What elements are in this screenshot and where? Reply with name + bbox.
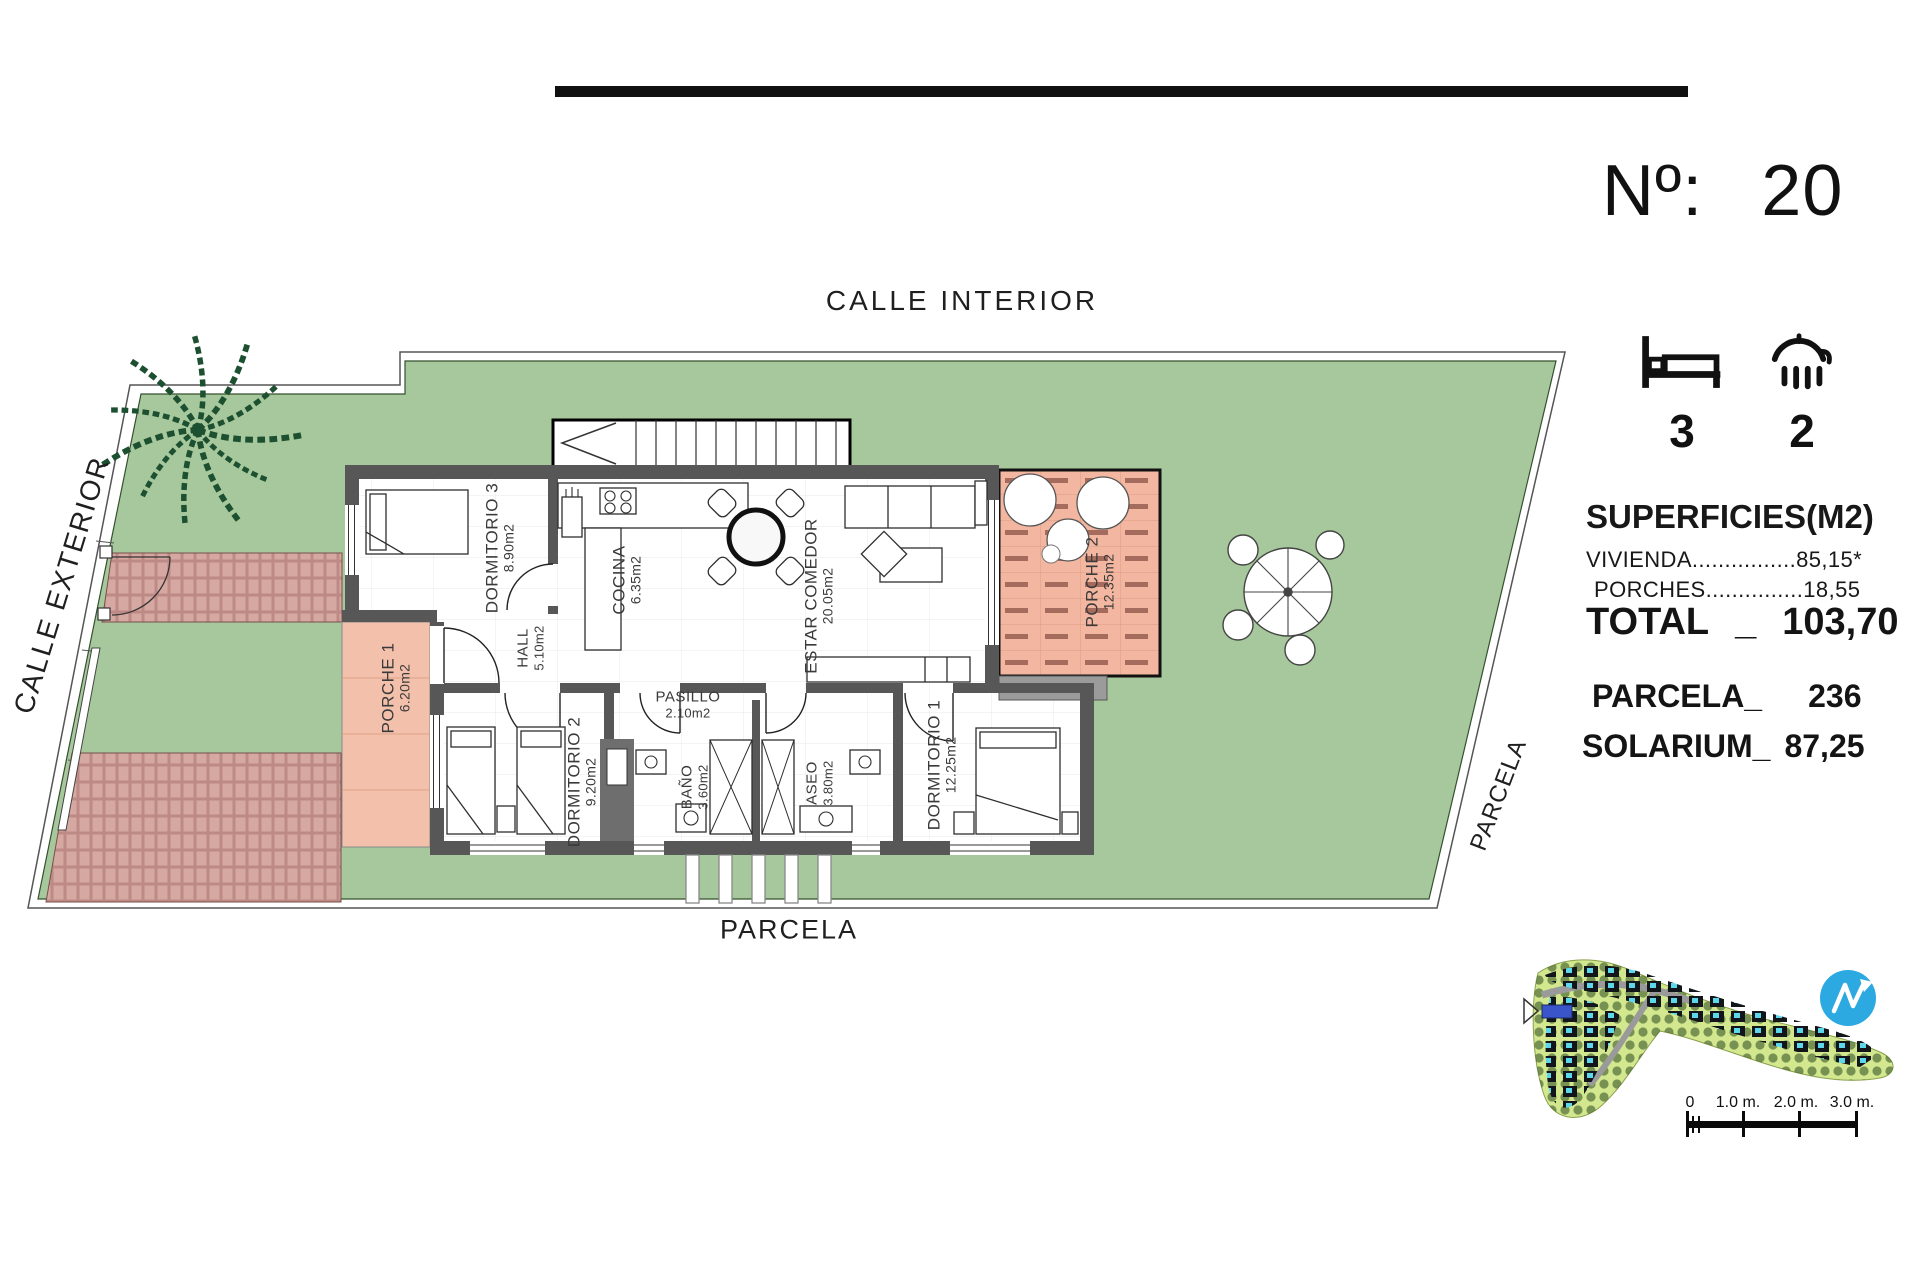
room-label-cocina: COCINA 6.35m2: [610, 545, 645, 614]
scale-tick-2: 2.0 m.: [1774, 1094, 1818, 1112]
floor-plan-page: CALLE INTERIOR CALLE EXTERIOR PARCELA PA…: [0, 0, 1920, 1280]
surface-value: 18,55: [1803, 577, 1860, 602]
scale-bar-line: [1686, 1121, 1858, 1128]
room-label-hall: HALL 5.10m2: [515, 625, 546, 670]
room-label-porche-1: PORCHE 1 6.20m2: [379, 643, 414, 734]
scale-tick-0: 0: [1686, 1094, 1695, 1112]
room-name: HALL: [515, 628, 532, 668]
porche-2-area: [999, 470, 1160, 700]
solarium-row: SOLARIUM_ 87,25: [1582, 728, 1865, 765]
room-area: 20.05m2: [821, 568, 837, 625]
surface-label: VIVIENDA: [1586, 547, 1692, 572]
total-separator: _: [1735, 601, 1756, 644]
dot-leader: ...............: [1706, 577, 1804, 602]
unit-number: Nº: 20: [1602, 150, 1843, 232]
room-name: ASEO: [804, 761, 821, 805]
room-label-pasillo: PASILLO 2.10m2: [656, 689, 721, 720]
room-area: 6.35m2: [629, 556, 645, 605]
surface-value: 85,15*: [1796, 547, 1862, 572]
wardrobe: [607, 749, 627, 785]
scale-bar: 0 1.0 m. 2.0 m. 3.0 m.: [1686, 1094, 1876, 1142]
room-label-dormitorio-3: DORMITORIO 3 8.90m2: [483, 483, 518, 613]
room-label-dormitorio-1: DORMITORIO 1 12.25m2: [925, 700, 960, 830]
surface-row-vivienda: VIVIENDA................85,15*: [1586, 547, 1862, 573]
plot-20-marker: [1542, 1005, 1572, 1018]
scale-tick-3: 3.0 m.: [1830, 1094, 1874, 1112]
staircase: [553, 420, 850, 467]
scale-bar-tick: [1855, 1111, 1858, 1137]
unit-number-label: Nº:: [1602, 150, 1703, 232]
room-name: ESTAR COMEDOR: [802, 518, 821, 673]
street-label-parcela-bottom: PARCELA: [720, 915, 858, 946]
parcela-row: PARCELA_ 236: [1592, 678, 1861, 715]
bathroom-count: 2: [1789, 404, 1815, 458]
room-label-porche-2: PORCHE 2 12.35m2: [1083, 537, 1118, 628]
solarium-value: 87,25: [1784, 728, 1864, 765]
room-area: 3.60m2: [696, 764, 711, 809]
bedroom-count: 3: [1669, 404, 1695, 458]
unit-number-value: 20: [1761, 150, 1843, 232]
room-area: 12.25m2: [944, 737, 960, 794]
north-arrow-logo: [1820, 970, 1876, 1026]
parcela-label: PARCELA_: [1592, 678, 1762, 715]
scale-bar-tick: [1698, 1116, 1700, 1133]
scale-tick-1: 1.0 m.: [1716, 1094, 1760, 1112]
surfaces-title: SUPERFICIES(M2): [1586, 498, 1874, 536]
room-area: 12.35m2: [1102, 554, 1118, 611]
scale-bar-tick: [1742, 1111, 1745, 1137]
scale-bar-tick: [1798, 1111, 1801, 1137]
room-area: 2.10m2: [665, 706, 710, 721]
room-area: 5.10m2: [532, 625, 547, 670]
room-label-aseo: ASEO 3.80m2: [804, 760, 835, 805]
room-name: DORMITORIO 2: [565, 717, 584, 847]
room-name: COCINA: [610, 545, 629, 614]
room-name: PASILLO: [656, 689, 721, 706]
room-label-estar-comedor: ESTAR COMEDOR 20.05m2: [802, 518, 837, 673]
street-label-calle-interior: CALLE INTERIOR: [826, 285, 1098, 317]
room-name: BAÑO: [679, 765, 696, 810]
dot-leader: ................: [1692, 547, 1796, 572]
bed-icon: [1636, 330, 1728, 396]
room-name: DORMITORIO 1: [925, 700, 944, 830]
room-name: DORMITORIO 3: [483, 483, 502, 613]
room-label-dormitorio-2: DORMITORIO 2 9.20m2: [565, 717, 600, 847]
room-name: PORCHE 1: [379, 643, 398, 734]
room-label-bano: BAÑO 3.60m2: [679, 764, 710, 809]
surface-label: PORCHES: [1594, 577, 1706, 602]
room-area: 6.20m2: [398, 664, 414, 713]
surface-row-porches: PORCHES...............18,55: [1594, 577, 1860, 603]
room-name: PORCHE 2: [1083, 537, 1102, 628]
room-area: 9.20m2: [584, 758, 600, 807]
room-area: 8.90m2: [502, 524, 518, 573]
scale-bar-tick: [1686, 1111, 1689, 1137]
scale-bar-tick: [1692, 1116, 1694, 1133]
room-area: 3.80m2: [821, 760, 836, 805]
total-row: TOTAL _ 103,70: [1586, 601, 1899, 644]
total-label: TOTAL: [1586, 601, 1709, 644]
parcela-value: 236: [1808, 678, 1861, 715]
shower-icon: [1762, 330, 1838, 396]
total-value: 103,70: [1782, 601, 1898, 644]
solarium-label: SOLARIUM_: [1582, 728, 1770, 765]
